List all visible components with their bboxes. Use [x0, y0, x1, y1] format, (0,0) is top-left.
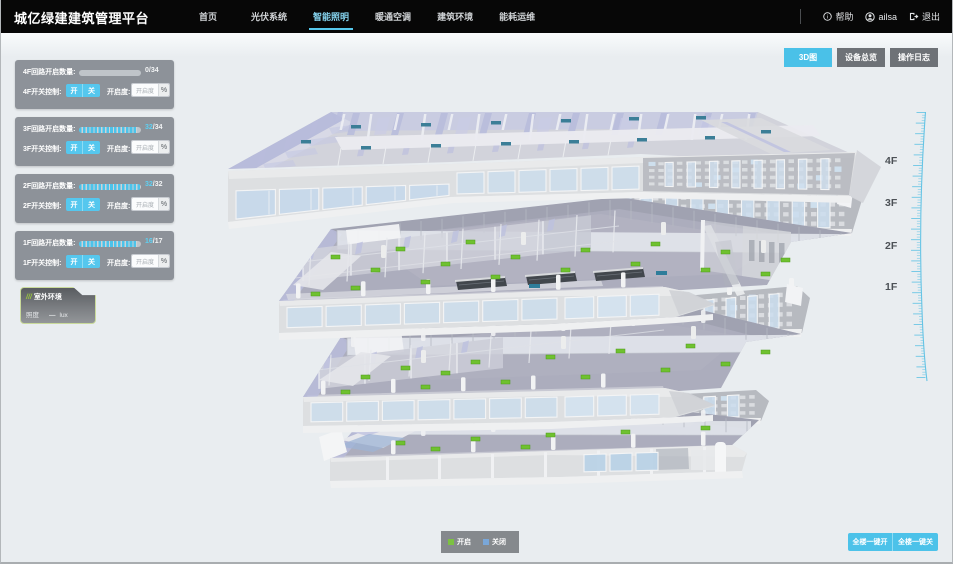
svg-text:i: i — [827, 15, 828, 21]
